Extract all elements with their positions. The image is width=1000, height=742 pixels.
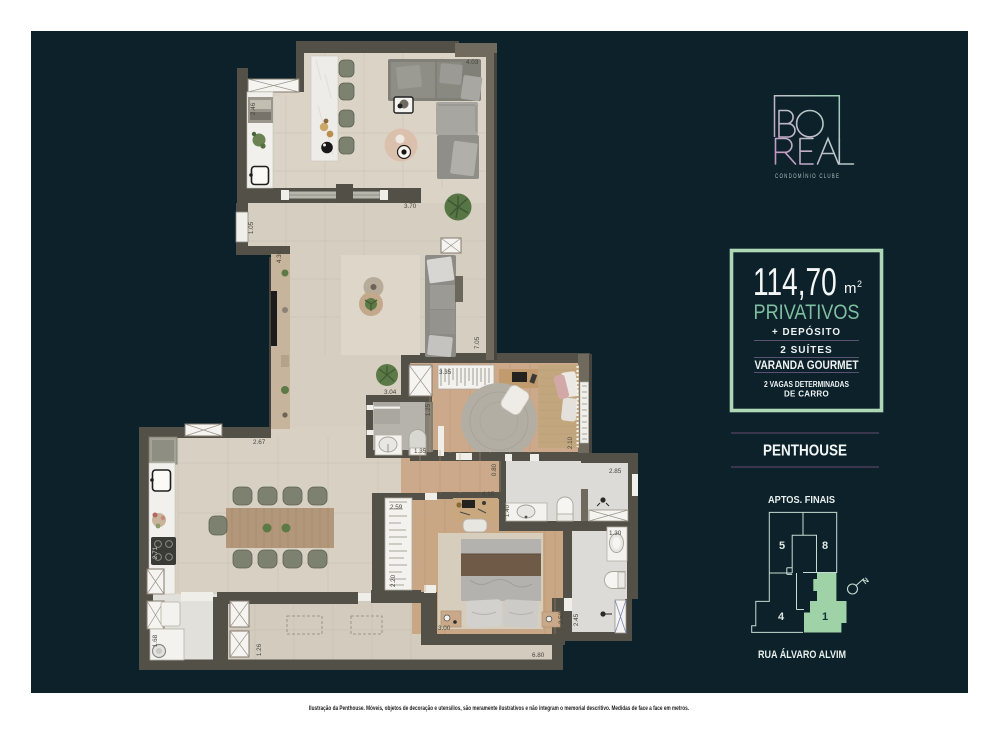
svg-text:4.30: 4.30 (276, 250, 283, 263)
svg-text:1.40: 1.40 (504, 504, 511, 517)
svg-text:3.04: 3.04 (384, 389, 397, 396)
svg-text:2.67: 2.67 (253, 439, 266, 446)
svg-text:2.45: 2.45 (573, 613, 580, 626)
svg-text:8: 8 (822, 540, 828, 552)
svg-text:3.70: 3.70 (404, 203, 417, 210)
svg-text:VARANDA GOURMET: VARANDA GOURMET (755, 358, 860, 372)
svg-text:2 VAGAS DETERMINADAS: 2 VAGAS DETERMINADAS (764, 380, 850, 389)
svg-text:m: m (844, 280, 857, 297)
svg-text:1.30: 1.30 (609, 530, 622, 537)
svg-text:Ilustração da Penthouse. Móvei: Ilustração da Penthouse. Móveis, objetos… (309, 705, 689, 712)
svg-text:+ DEPÓSITO: + DEPÓSITO (772, 326, 841, 338)
svg-text:2.71: 2.71 (152, 546, 159, 559)
svg-text:5: 5 (779, 540, 785, 552)
svg-text:1: 1 (822, 611, 828, 623)
svg-text:1.35: 1.35 (414, 448, 427, 455)
svg-text:7.05: 7.05 (474, 336, 481, 349)
svg-text:APTOS. FINAIS: APTOS. FINAIS (768, 495, 835, 506)
svg-text:DE CARRO: DE CARRO (784, 390, 829, 399)
svg-text:4: 4 (778, 611, 785, 623)
svg-text:PENTHOUSE: PENTHOUSE (763, 443, 847, 460)
svg-text:4.15: 4.15 (482, 491, 495, 498)
svg-text:2.59: 2.59 (390, 504, 403, 511)
svg-text:2: 2 (857, 279, 862, 289)
svg-text:2.10: 2.10 (567, 436, 574, 449)
svg-text:3.00: 3.00 (438, 625, 451, 632)
svg-text:4.03: 4.03 (466, 59, 479, 66)
svg-text:2.46: 2.46 (250, 102, 257, 115)
svg-text:1.05: 1.05 (248, 221, 255, 234)
svg-text:1.25: 1.25 (425, 403, 432, 416)
svg-text:2.50: 2.50 (558, 611, 565, 624)
svg-text:114,70: 114,70 (753, 261, 837, 305)
svg-text:1.68: 1.68 (152, 634, 159, 647)
svg-text:2.20: 2.20 (390, 574, 397, 587)
svg-text:2.85: 2.85 (609, 468, 622, 475)
svg-text:RUA ÁLVARO ALVIM: RUA ÁLVARO ALVIM (758, 648, 846, 661)
svg-text:2 SUÍTES: 2 SUÍTES (780, 343, 832, 356)
svg-text:PRIVATIVOS: PRIVATIVOS (754, 301, 860, 324)
svg-text:6.80: 6.80 (532, 652, 545, 659)
svg-text:1.26: 1.26 (256, 643, 263, 656)
svg-text:0.80: 0.80 (491, 463, 498, 476)
svg-text:3.35: 3.35 (439, 369, 452, 376)
svg-text:C O N D O M Í N I O C L U B: C O N D O M Í N I O C L U B E (775, 173, 839, 180)
